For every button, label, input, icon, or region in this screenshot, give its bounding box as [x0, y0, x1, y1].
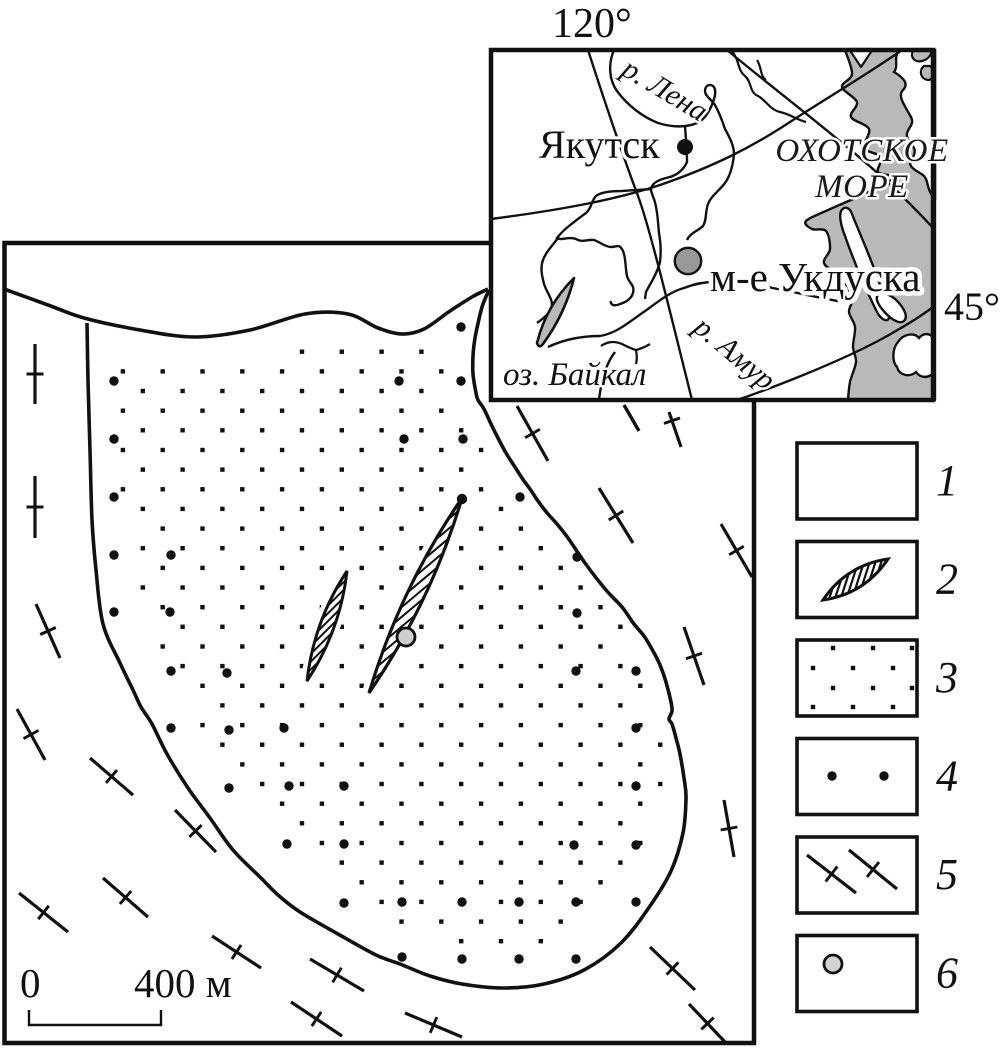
svg-text:400 м: 400 м [134, 960, 232, 1006]
svg-text:45°: 45° [944, 284, 1000, 329]
svg-text:Якутск: Якутск [539, 122, 660, 167]
svg-text:5: 5 [936, 850, 958, 899]
svg-text:6: 6 [936, 949, 958, 998]
svg-text:4: 4 [936, 752, 958, 801]
svg-text:120°: 120° [552, 1, 632, 47]
svg-text:2: 2 [936, 555, 958, 604]
svg-text:м-е Укдуска: м-е Укдуска [710, 254, 920, 300]
svg-text:МОРЕ: МОРЕ [814, 169, 909, 205]
svg-text:ОХОТСКОЕ: ОХОТСКОЕ [775, 133, 948, 169]
svg-text:1: 1 [936, 456, 958, 505]
svg-text:3: 3 [935, 653, 958, 702]
svg-text:0: 0 [20, 960, 41, 1006]
svg-text:оз. Байкал: оз. Байкал [503, 357, 646, 393]
